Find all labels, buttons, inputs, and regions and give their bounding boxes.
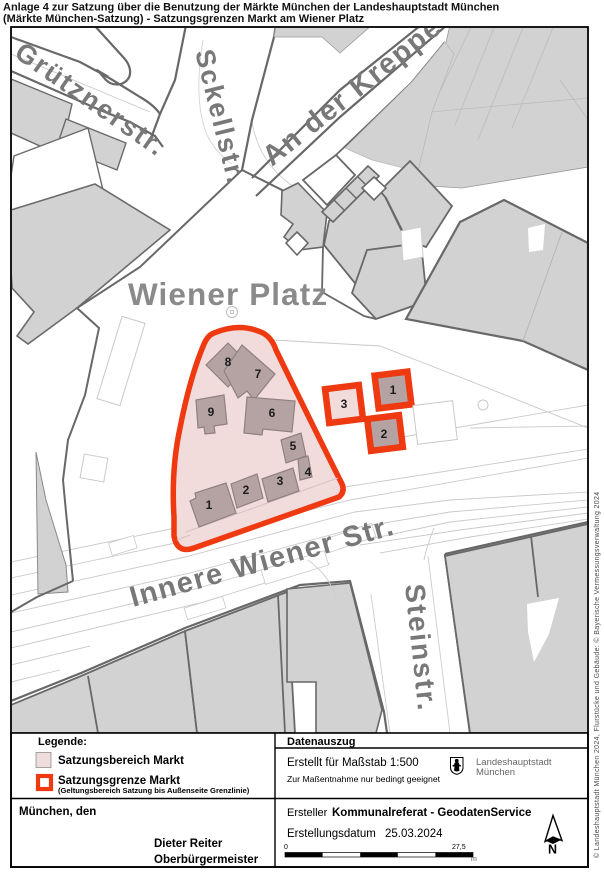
svg-text:Kommunalreferat - GeodatenServ: Kommunalreferat - GeodatenService [332, 807, 531, 819]
svg-text:N: N [548, 843, 557, 857]
svg-text:7: 7 [255, 367, 262, 381]
svg-text:5: 5 [290, 439, 297, 453]
svg-text:2: 2 [243, 483, 250, 497]
svg-text:Datenauszug: Datenauszug [287, 736, 355, 748]
svg-text:Erstellt für Maßstab 1:500: Erstellt für Maßstab 1:500 [287, 757, 419, 769]
svg-text:München: München [476, 767, 515, 778]
svg-text:9: 9 [208, 405, 215, 419]
svg-text:27,5: 27,5 [452, 844, 466, 851]
svg-text:Anlage 4 zur Satzung über die: Anlage 4 zur Satzung über die Benutzung … [3, 2, 500, 14]
svg-text:Zur Maßentnahme nur bedingt ge: Zur Maßentnahme nur bedingt geeignet [287, 774, 441, 784]
svg-text:1: 1 [390, 383, 397, 397]
svg-text:2: 2 [381, 427, 388, 441]
svg-text:6: 6 [269, 406, 276, 420]
svg-text:Erstellungsdatum: Erstellungsdatum [287, 828, 376, 840]
svg-text:(Märkte München-Satzung) - Sat: (Märkte München-Satzung) - Satzungsgrenz… [3, 13, 365, 25]
svg-text:4: 4 [305, 465, 312, 479]
svg-text:Legende:: Legende: [38, 736, 87, 748]
svg-text:Oberbürgermeister: Oberbürgermeister [154, 854, 259, 866]
svg-text:München, den: München, den [19, 806, 96, 818]
svg-text:Wiener Platz: Wiener Platz [128, 276, 328, 312]
svg-text:1: 1 [206, 498, 213, 512]
svg-text:m: m [471, 856, 477, 863]
svg-text:Ersteller: Ersteller [287, 807, 328, 819]
svg-text:Dieter Reiter: Dieter Reiter [154, 838, 223, 850]
svg-text:3: 3 [341, 397, 348, 411]
svg-text:25.03.2024: 25.03.2024 [385, 828, 443, 840]
svg-text:(Geltungsbereich Satzung bis A: (Geltungsbereich Satzung bis Außenseite … [58, 786, 250, 795]
svg-text:0: 0 [284, 844, 288, 851]
svg-text:© Landeshauptstadt München 202: © Landeshauptstadt München 2024, Flurstü… [593, 491, 601, 858]
svg-text:8: 8 [225, 355, 232, 369]
svg-text:Satzungsbereich Markt: Satzungsbereich Markt [58, 755, 184, 767]
svg-text:3: 3 [277, 474, 284, 488]
